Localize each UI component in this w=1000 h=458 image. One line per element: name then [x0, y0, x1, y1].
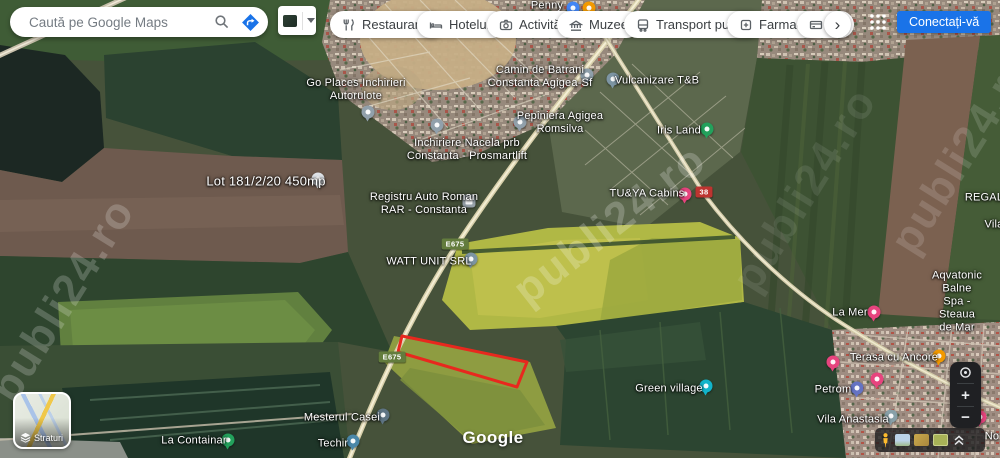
listing-area-outline: [398, 336, 527, 387]
imagery-thumbnail-2[interactable]: [914, 434, 929, 446]
imagery-thumbnail-1[interactable]: [895, 434, 910, 446]
poi-label-vulcanizare[interactable]: Vulcanizare T&B: [615, 75, 699, 88]
chevron-down-icon: [307, 18, 315, 27]
collapse-chevrons-icon[interactable]: [954, 435, 964, 446]
mini-layer-toggle[interactable]: [278, 6, 316, 35]
poi-label-vila-anastasia[interactable]: Vila Anastasia: [817, 414, 889, 427]
iris-land-park-pin[interactable]: [701, 123, 714, 136]
search-button[interactable]: [208, 7, 237, 37]
poi-label-mesterul[interactable]: Mesterul Casei: [304, 412, 380, 425]
activities-icon: [499, 18, 513, 32]
satellite-thumbnail: [283, 15, 297, 27]
town-hotel-pin[interactable]: [827, 356, 840, 369]
poi-label-la-containar[interactable]: La Containar: [161, 435, 226, 448]
route-badge-e675: E675: [379, 352, 406, 363]
compass-icon: [959, 366, 972, 379]
poi-label-tuya[interactable]: TU&YA Cabins: [610, 188, 685, 201]
layers-label: Straturi: [34, 433, 63, 443]
poi-label-aqvatonic[interactable]: Aqvatonic Balne Spa - Steaua de Mar: [932, 270, 982, 335]
chevron-right-icon: ›: [835, 16, 841, 33]
museums-icon: [569, 18, 583, 32]
poi-label-watt[interactable]: WATT UNIT SRL: [386, 256, 471, 269]
chip-label: Muzee: [589, 17, 628, 32]
poi-label-lot[interactable]: Lot 181/2/20 450mp: [206, 173, 325, 188]
map-controls: + −: [950, 362, 981, 428]
poi-label-vila[interactable]: Vila: [985, 219, 1000, 232]
google-maps-app: publi24.ro publi24.ro publi24.ro publi24…: [0, 0, 1000, 458]
zoom-in-button[interactable]: +: [950, 384, 981, 405]
poi-label-pepiniera[interactable]: Pepiniera Agigea Romsilva: [517, 110, 603, 136]
imagery-thumbnail-3[interactable]: [933, 434, 948, 446]
directions-button[interactable]: [237, 7, 266, 37]
poi-label-iris-land[interactable]: Iris Land: [657, 125, 701, 138]
sign-in-button[interactable]: Conectați-vă: [897, 11, 991, 33]
google-apps-grid-icon[interactable]: [869, 13, 887, 31]
poi-label-registru[interactable]: Registru Auto Roman RAR - Constanta: [370, 191, 478, 217]
compass-button[interactable]: [950, 362, 981, 383]
directions-icon: [241, 13, 260, 32]
google-logo-watermark: Google: [463, 428, 524, 448]
poi-label-nacela[interactable]: Inchiriere Nacela prb Constanta - Prosma…: [407, 137, 527, 163]
transit-icon: [636, 18, 650, 32]
divider: [302, 12, 303, 30]
poi-label-green-village[interactable]: Green village: [635, 383, 702, 396]
imagery-bar: [875, 428, 985, 452]
go-places-pin[interactable]: [362, 106, 375, 119]
pegman-icon[interactable]: [880, 432, 891, 449]
layers-button[interactable]: Straturi: [13, 392, 71, 449]
route-badge-e675: E675: [442, 239, 469, 250]
search-input[interactable]: [27, 14, 208, 31]
layers-icon: [20, 432, 31, 443]
la-mer-hotel-pin[interactable]: [868, 306, 881, 319]
route-badge-38: 38: [696, 187, 713, 198]
poi-label-regal[interactable]: REGAL: [965, 192, 1000, 205]
poi-label-terasa[interactable]: Terasa cu Ancore: [850, 352, 938, 365]
pharmacies-icon: [739, 18, 753, 32]
poi-label-techir[interactable]: Techir: [318, 438, 349, 451]
poi-label-camin[interactable]: Camin de Batrani Constanta Agigea-Sf: [488, 64, 593, 90]
hotel-pin-2[interactable]: [871, 373, 884, 386]
poi-label-petrom[interactable]: Petrom: [815, 384, 852, 397]
restaurants-icon: [342, 18, 356, 32]
atm-icon: [809, 18, 823, 32]
search-icon: [214, 14, 230, 30]
nacela-pin[interactable]: [431, 119, 444, 132]
chips-scroll-right-button[interactable]: ›: [824, 11, 851, 38]
poi-label-go-places[interactable]: Go Places Inchirieri Autorulote: [306, 77, 405, 103]
poi-label-la-mer[interactable]: La Mer: [832, 307, 867, 320]
search-bar: [10, 7, 268, 37]
poi-label-partial: No: [985, 431, 999, 444]
petrom-gas-pin[interactable]: [851, 382, 864, 395]
zoom-out-button[interactable]: −: [950, 407, 981, 428]
hotels-icon: [429, 18, 443, 32]
